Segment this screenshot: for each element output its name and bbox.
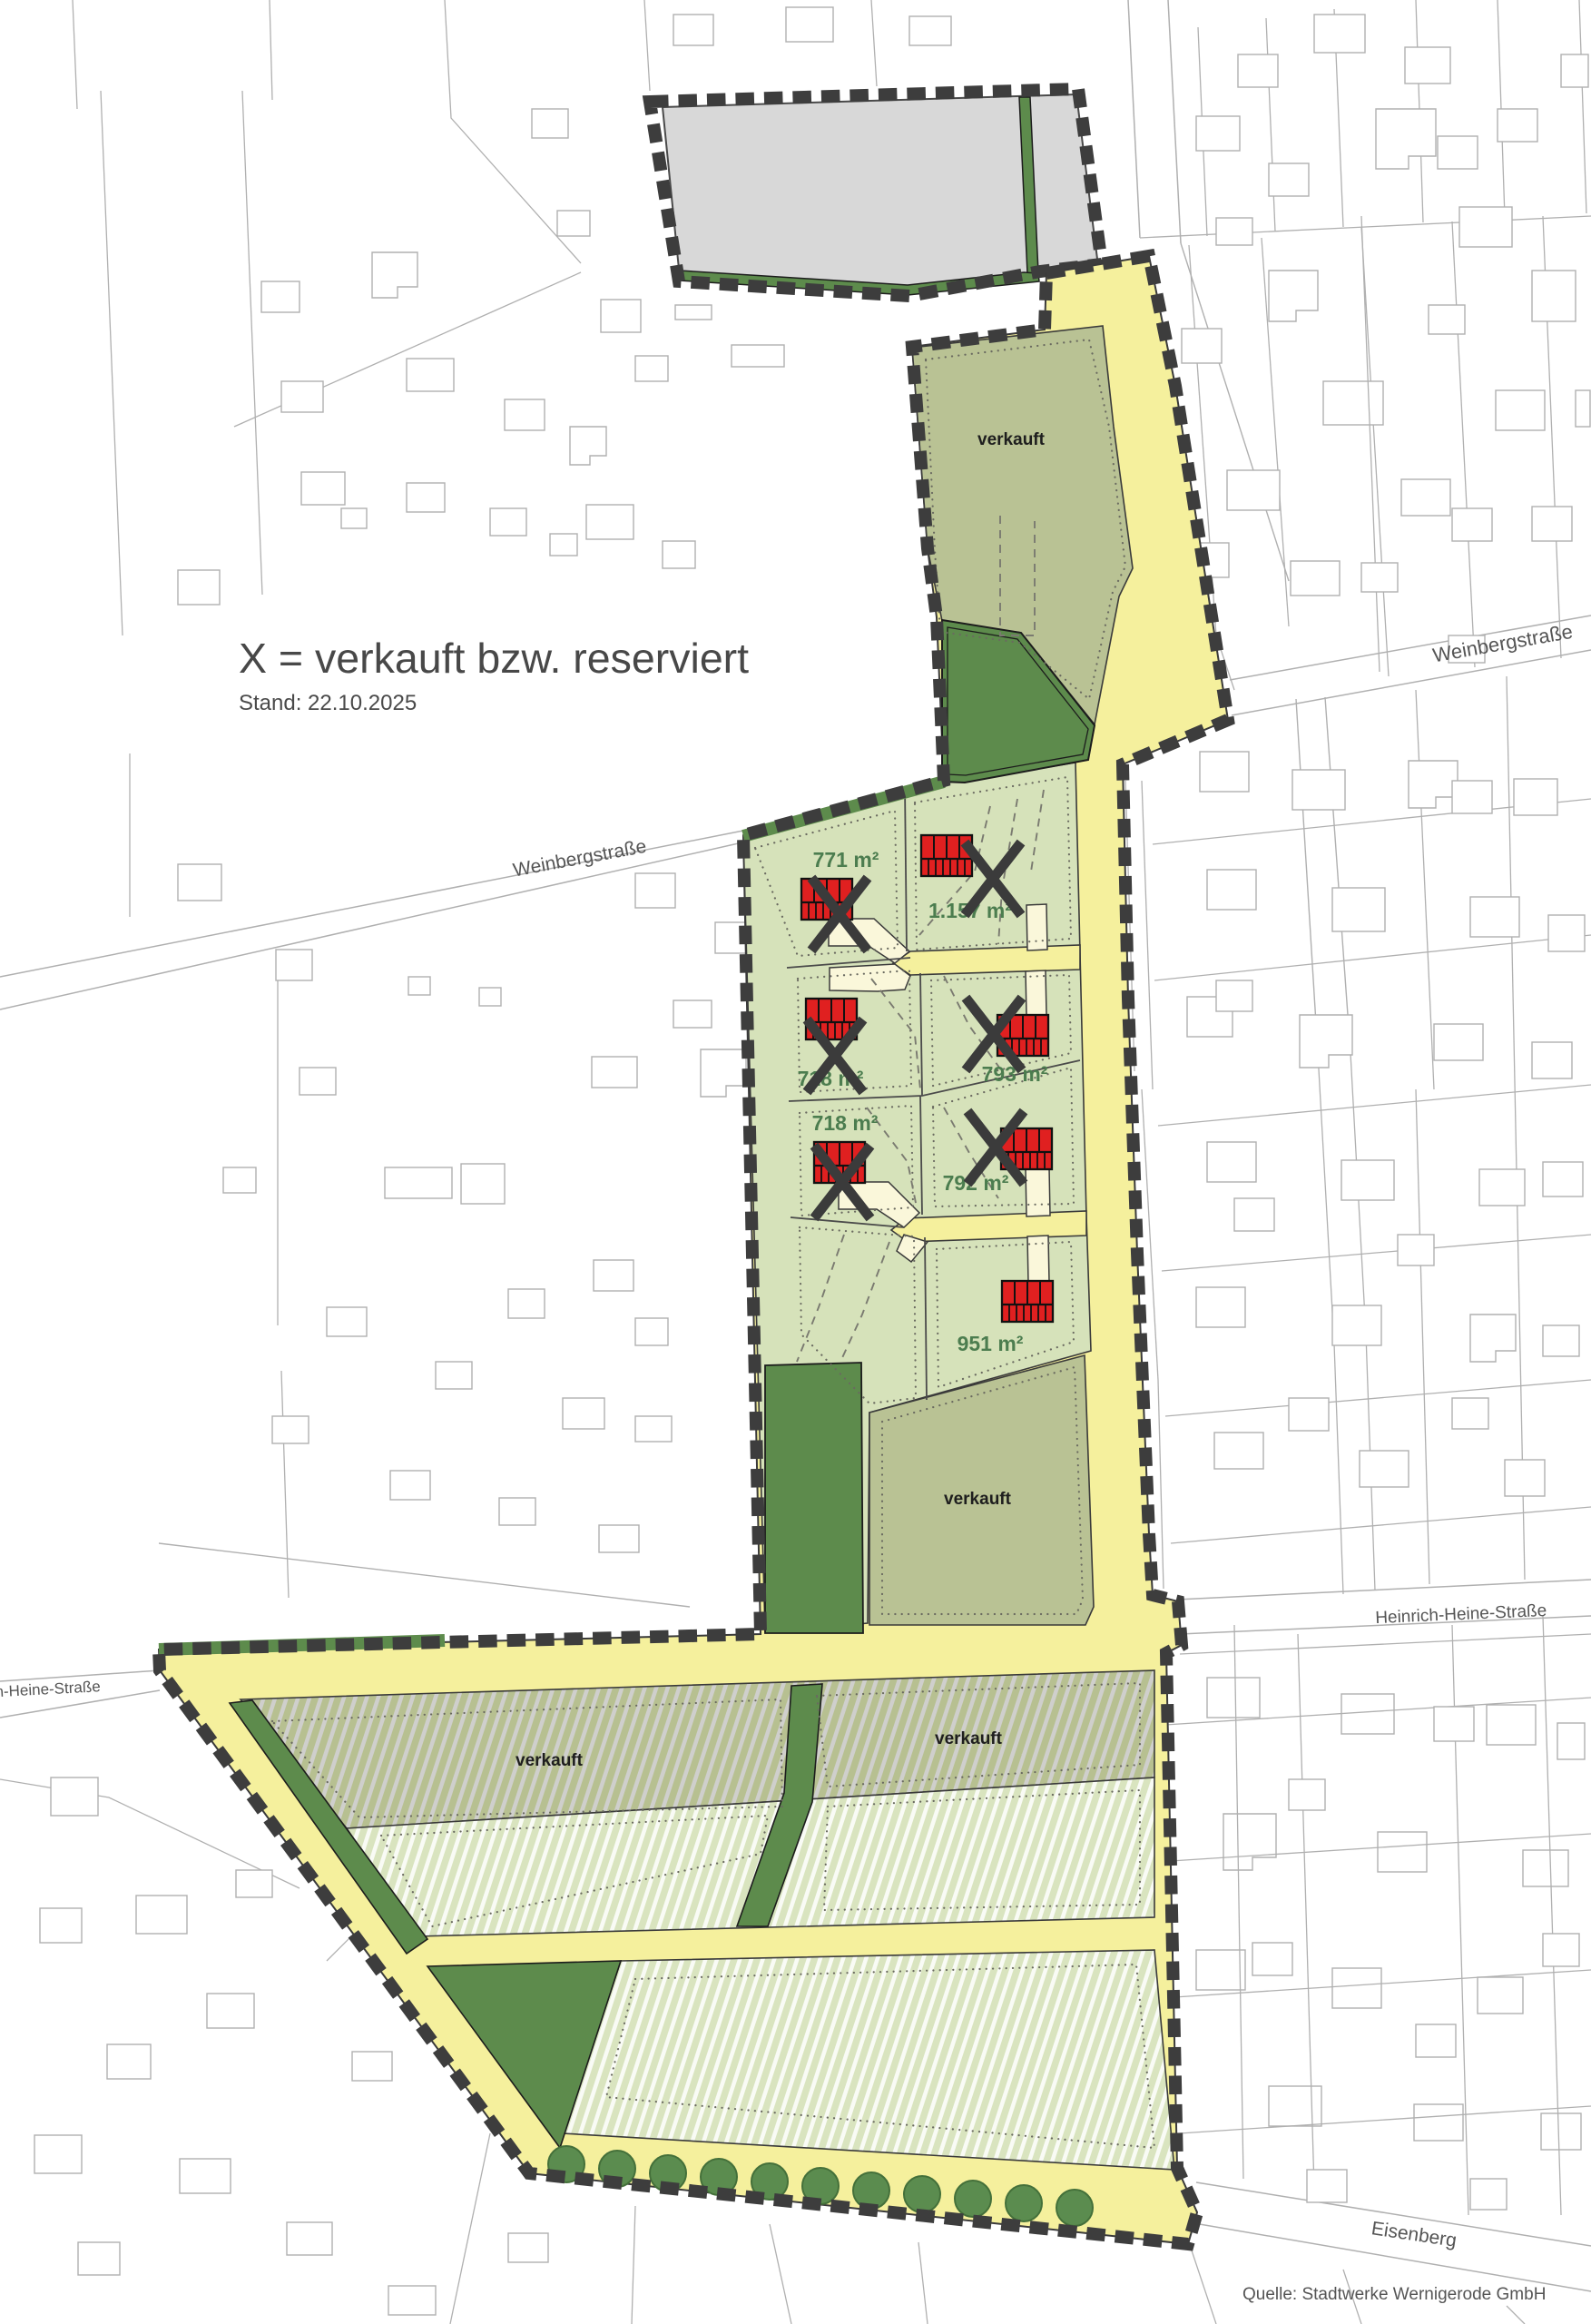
svg-text:718 m²: 718 m² xyxy=(812,1111,879,1135)
svg-text:X = verkauft bzw. reserviert: X = verkauft bzw. reserviert xyxy=(239,635,749,682)
svg-text:951 m²: 951 m² xyxy=(958,1332,1024,1355)
svg-text:Stand: 22.10.2025: Stand: 22.10.2025 xyxy=(239,691,417,715)
svg-text:verkauft: verkauft xyxy=(516,1751,584,1770)
svg-text:verkauft: verkauft xyxy=(977,430,1046,449)
svg-text:771 m²: 771 m² xyxy=(813,848,879,871)
svg-text:verkauft: verkauft xyxy=(944,1490,1012,1509)
svg-text:Quelle: Stadtwerke Wernigerode: Quelle: Stadtwerke Wernigerode GmbH xyxy=(1242,2285,1546,2304)
svg-text:verkauft: verkauft xyxy=(935,1729,1003,1748)
